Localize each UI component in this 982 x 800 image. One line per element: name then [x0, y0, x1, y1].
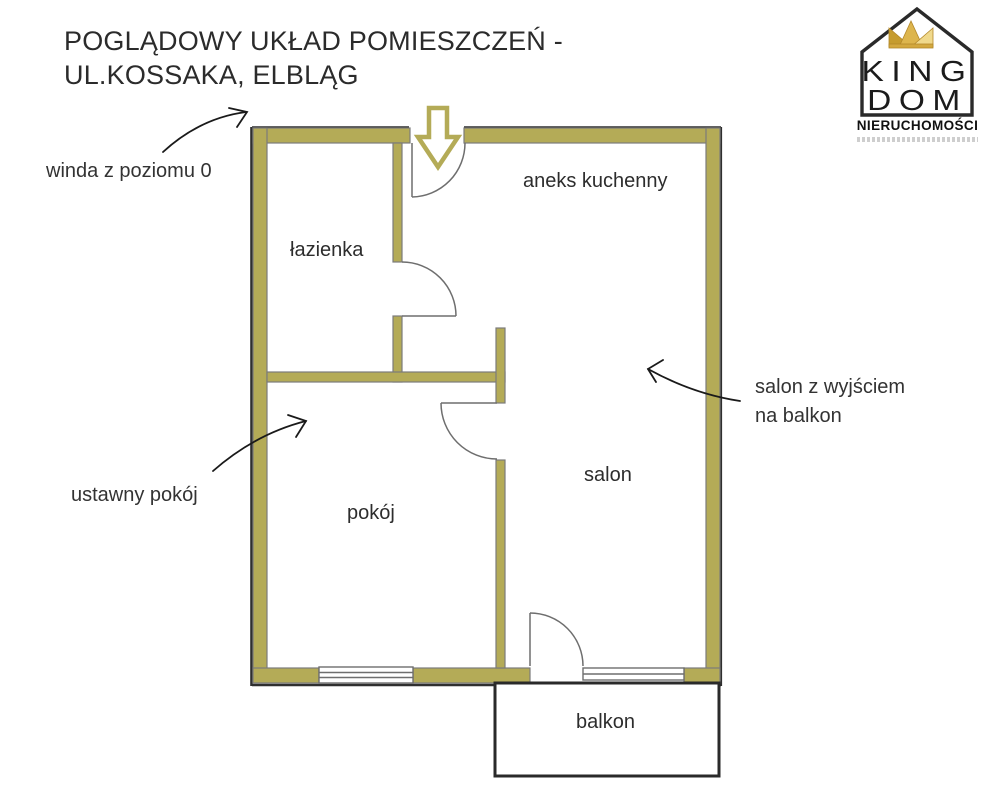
outer-walls	[253, 128, 720, 683]
annotation-ustawny-pokoj: ustawny pokój	[71, 484, 198, 507]
interior-walls	[267, 143, 505, 668]
winda-annotation-arrow	[163, 108, 247, 152]
floor-plan-page: POGLĄDOWY UKŁAD POMIESZCZEŃ - UL.KOSSAKA…	[0, 0, 982, 800]
logo-tagline: NIERUCHOMOŚCI	[853, 118, 982, 133]
pokoj-door-arc	[441, 403, 497, 459]
room-label-pokoj: pokój	[347, 502, 395, 525]
logo-microtext-strip	[857, 137, 978, 142]
outer-outline	[252, 127, 722, 686]
annotation-salon-balkon-line2: na balkon	[755, 402, 905, 431]
room-label-aneks-kuchenny: aneks kuchenny	[523, 170, 668, 193]
balcony-window	[583, 668, 684, 680]
room-label-balkon: balkon	[576, 711, 635, 734]
entrance-arrow-icon	[418, 108, 458, 167]
logo-brand-dom: DOM	[848, 84, 982, 117]
annotation-winda: winda z poziomu 0	[46, 160, 212, 183]
pokoj-window	[319, 667, 413, 683]
salon-balkon-annotation-arrow	[648, 360, 740, 401]
room-label-salon: salon	[584, 464, 632, 487]
balcony-door-arc	[530, 613, 583, 666]
annotation-salon-balkon-line1: salon z wyjściem	[755, 373, 905, 402]
kingdom-logo: KING DOM NIERUCHOMOŚCI	[853, 4, 982, 144]
annotation-salon-balkon: salon z wyjściem na balkon	[755, 373, 905, 431]
room-label-lazienka: łazienka	[290, 239, 363, 262]
bathroom-door-arc	[402, 262, 456, 316]
